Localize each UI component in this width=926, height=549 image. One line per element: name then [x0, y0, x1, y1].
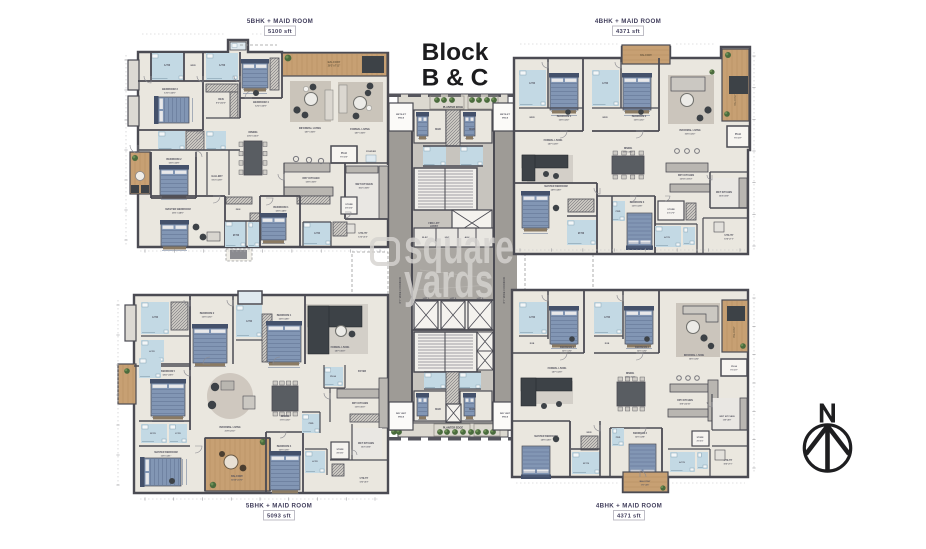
svg-text:PUJA: PUJA: [731, 365, 737, 368]
svg-text:SPACE: SPACE: [398, 116, 405, 119]
svg-text:7'5"x5'7": 7'5"x5'7": [734, 137, 742, 139]
svg-text:FORMAL LIVING: FORMAL LIVING: [350, 128, 370, 131]
svg-text:13'0"x10'0": 13'0"x10'0": [355, 406, 366, 408]
svg-text:BEDROOM 1: BEDROOM 1: [560, 347, 575, 349]
svg-text:14'7"x16'0": 14'7"x16'0": [335, 349, 346, 352]
svg-text:12'0"x12'2": 12'0"x12'2": [634, 119, 645, 121]
svg-text:15'5"x12'2": 15'5"x12'2": [685, 133, 696, 135]
svg-text:PUJA: PUJA: [341, 152, 347, 155]
svg-text:14'9"x14'0": 14'9"x14'0": [541, 438, 552, 441]
svg-text:STORE: STORE: [336, 449, 344, 451]
svg-text:BALCONY: BALCONY: [734, 94, 737, 106]
svg-text:MAID: MAID: [469, 408, 475, 411]
svg-text:4BHK + MAID ROOM: 4BHK + MAID ROOM: [595, 18, 661, 25]
svg-text:10'2"x10'6": 10'2"x10'6": [361, 446, 371, 448]
svg-text:12'0"x14'0": 12'0"x14'0": [275, 209, 286, 212]
svg-text:A.TOI: A.TOI: [219, 64, 226, 67]
svg-text:4BHK + MAID ROOM: 4BHK + MAID ROOM: [596, 503, 662, 510]
svg-text:10'9"x12'10": 10'9"x12'10": [679, 403, 690, 405]
svg-text:DRY KITCHEN: DRY KITCHEN: [303, 177, 320, 180]
svg-text:UTILITY: UTILITY: [360, 478, 369, 480]
svg-text:DRY KITCHEN: DRY KITCHEN: [352, 402, 368, 405]
svg-text:BEDROOM 3: BEDROOM 3: [162, 87, 178, 91]
svg-text:4'1"x7'6": 4'1"x7'6": [667, 211, 675, 214]
svg-text:M.TOI: M.TOI: [578, 233, 585, 235]
svg-text:FORMAL LIVING: FORMAL LIVING: [548, 367, 567, 370]
svg-text:17'5"x10'2": 17'5"x10'2": [623, 151, 634, 153]
svg-text:A.TOI: A.TOI: [529, 316, 535, 319]
svg-text:12'0"x12'8": 12'0"x12'8": [632, 205, 643, 207]
svg-text:14'7"x16'0": 14'7"x16'0": [354, 131, 365, 134]
svg-text:PUJA: PUJA: [330, 375, 336, 378]
svg-text:14'11"x10'0": 14'11"x10'0": [163, 373, 174, 376]
svg-text:13'2"x5'3": 13'2"x5'3": [359, 481, 368, 483]
svg-text:12'10"x11'10": 12'10"x11'10": [680, 178, 693, 180]
svg-text:13'9"x10'0": 13'9"x10'0": [305, 181, 316, 183]
svg-text:BEDROOM 1: BEDROOM 1: [557, 115, 572, 118]
svg-text:A.TOI: A.TOI: [679, 461, 685, 464]
svg-text:4371 sft: 4371 sft: [617, 514, 641, 520]
svg-text:POWDER: POWDER: [366, 151, 376, 153]
svg-text:13'9"x8'0": 13'9"x8'0": [723, 419, 732, 421]
svg-text:PUJA: PUJA: [735, 133, 741, 136]
svg-text:STORE: STORE: [345, 204, 353, 206]
svg-text:WDR: WDR: [587, 432, 592, 434]
svg-text:SPACE: SPACE: [502, 116, 509, 119]
svg-text:WDR: WDR: [529, 117, 535, 119]
svg-text:WET KITCHEN: WET KITCHEN: [716, 192, 732, 194]
svg-text:BALCONY: BALCONY: [640, 54, 652, 57]
svg-text:A.TOI: A.TOI: [164, 64, 171, 67]
svg-text:14'9"x14'0": 14'9"x14'0": [551, 188, 562, 191]
svg-text:MAID: MAID: [435, 408, 441, 411]
svg-text:GALLERY: GALLERY: [211, 175, 223, 178]
svg-text:10'6"x7'1": 10'6"x7'1": [724, 238, 734, 240]
svg-text:A.TOI: A.TOI: [152, 316, 158, 319]
svg-text:BALCONY: BALCONY: [733, 326, 736, 337]
svg-text:7'0"x5'0": 7'0"x5'0": [340, 156, 348, 158]
svg-text:12'0"x12'8": 12'0"x12'8": [635, 436, 645, 438]
svg-text:BEDROOM 5: BEDROOM 5: [161, 371, 176, 373]
svg-text:DRY KITCHEN: DRY KITCHEN: [678, 174, 694, 177]
svg-text:13'0"x12'9": 13'0"x12'9": [168, 162, 179, 164]
svg-text:12'0"x12'2": 12'0"x12'2": [202, 316, 213, 318]
svg-text:DRY KITCHEN: DRY KITCHEN: [677, 400, 693, 402]
svg-text:WDR: WDR: [190, 65, 196, 67]
svg-text:20'1"x14'0": 20'1"x14'0": [172, 211, 184, 214]
svg-text:BALCONY: BALCONY: [231, 475, 243, 478]
svg-text:FORMAL LIVING: FORMAL LIVING: [331, 346, 350, 349]
svg-text:DRY UNIT: DRY UNIT: [396, 413, 407, 415]
svg-text:SPACE: SPACE: [502, 415, 509, 418]
svg-text:A.TOI: A.TOI: [149, 350, 155, 353]
svg-text:ROB: ROB: [530, 343, 535, 345]
svg-text:4371 sft: 4371 sft: [616, 29, 640, 35]
svg-text:MAID: MAID: [469, 128, 475, 131]
svg-text:WET/LIFT: WET/LIFT: [396, 114, 407, 116]
svg-text:STORE: STORE: [697, 437, 705, 439]
svg-text:WET KITCHEN: WET KITCHEN: [719, 416, 735, 418]
svg-text:12'0"x12'2": 12'0"x12'2": [562, 350, 572, 352]
svg-text:PWD: PWD: [309, 423, 314, 425]
svg-text:INFORMAL LIVING: INFORMAL LIVING: [299, 127, 321, 130]
svg-text:BEDROOM 4: BEDROOM 4: [253, 100, 269, 104]
svg-text:29'2"x7'11": 29'2"x7'11": [328, 64, 341, 67]
svg-text:10'6"x7'1": 10'6"x7'1": [723, 463, 732, 465]
svg-text:INFORMAL LIVING: INFORMAL LIVING: [679, 129, 700, 132]
svg-text:BEDROOM 1: BEDROOM 1: [277, 314, 292, 317]
svg-text:A.TOI: A.TOI: [314, 232, 320, 235]
svg-text:BEDROOM 1: BEDROOM 1: [273, 206, 289, 209]
svg-text:7'0"x5'7": 7'0"x5'7": [730, 369, 738, 371]
svg-text:INFORMAL LIVING: INFORMAL LIVING: [219, 426, 240, 429]
svg-text:4'9"x6'6": 4'9"x6'6": [345, 206, 353, 209]
svg-text:K.TOI: K.TOI: [175, 433, 181, 435]
svg-text:UTILITY: UTILITY: [358, 232, 367, 235]
svg-text:17'0"x13'2": 17'0"x13'2": [280, 419, 291, 421]
svg-text:MASTER BEDROOM: MASTER BEDROOM: [544, 185, 567, 188]
svg-text:DINING: DINING: [626, 372, 635, 375]
svg-text:5BHK + MAID ROOM: 5BHK + MAID ROOM: [246, 503, 312, 510]
svg-text:STORE: STORE: [667, 209, 675, 211]
svg-text:A.TOI: A.TOI: [604, 316, 610, 319]
svg-text:23'3"x13'2": 23'3"x13'2": [247, 135, 259, 137]
svg-text:12'0"x14'5": 12'0"x14'5": [279, 317, 290, 320]
svg-text:BALCONY: BALCONY: [328, 60, 341, 64]
svg-text:14'7"x12'9": 14'7"x12'9": [548, 142, 559, 145]
svg-text:6'7" WIDE CORRIDOR: 6'7" WIDE CORRIDOR: [502, 277, 506, 304]
svg-text:A.TOI: A.TOI: [246, 320, 252, 323]
svg-text:DEN: DEN: [218, 98, 223, 101]
svg-text:17'1"x6'6": 17'1"x6'6": [641, 484, 650, 486]
svg-text:BALCONY: BALCONY: [640, 480, 651, 483]
svg-text:DINING: DINING: [248, 130, 257, 134]
svg-text:13'5"x14'1": 13'5"x14'1": [161, 454, 172, 457]
svg-text:A.TOI: A.TOI: [529, 82, 535, 85]
svg-text:MASTER BEDROOM: MASTER BEDROOM: [154, 451, 177, 454]
svg-text:4'9"x6'6": 4'9"x6'6": [336, 451, 343, 454]
svg-text:14'7"x16'0": 14'7"x16'0": [304, 130, 315, 133]
svg-text:A.TOI: A.TOI: [664, 236, 670, 239]
svg-text:WET KITCHEN: WET KITCHEN: [358, 443, 374, 445]
svg-text:A.TOI: A.TOI: [312, 460, 318, 463]
svg-text:9'0"x12'0": 9'0"x12'0": [216, 102, 226, 104]
svg-text:BEDROOM 2: BEDROOM 2: [632, 115, 647, 118]
svg-text:12'2"x12'9": 12'2"x12'9": [255, 105, 267, 107]
svg-text:PWD: PWD: [616, 211, 621, 213]
svg-text:PLANTER EDGE: PLANTER EDGE: [443, 426, 464, 430]
svg-text:WET/LIFT: WET/LIFT: [500, 114, 511, 116]
svg-text:10'2"x10'6": 10'2"x10'6": [358, 187, 369, 189]
svg-text:21'8"x21'2": 21'8"x21'2": [225, 430, 236, 432]
svg-text:DINING: DINING: [281, 415, 290, 418]
svg-text:5BHK + MAID ROOM: 5BHK + MAID ROOM: [247, 18, 313, 25]
svg-text:13'0"x12'0": 13'0"x12'0": [164, 92, 176, 94]
svg-text:12'0"x12'2": 12'0"x12'2": [637, 350, 647, 352]
svg-text:14'7"x12'9": 14'7"x12'9": [552, 370, 563, 373]
svg-text:PWD: PWD: [616, 437, 621, 439]
svg-text:5'10"x12'9": 5'10"x12'9": [212, 179, 223, 181]
svg-text:DRY UNIT: DRY UNIT: [500, 413, 511, 415]
svg-text:10'4"x10'9": 10'4"x10'9": [719, 194, 729, 197]
svg-text:MASTER BEDROOM: MASTER BEDROOM: [165, 207, 190, 211]
svg-text:FORMAL LIVING: FORMAL LIVING: [544, 139, 563, 142]
svg-text:UTILITY: UTILITY: [724, 234, 733, 237]
svg-text:BEDROOM 2: BEDROOM 2: [635, 347, 650, 349]
svg-text:WET KITCHEN: WET KITCHEN: [355, 183, 373, 186]
svg-text:BEDROOM 4: BEDROOM 4: [277, 445, 292, 448]
svg-text:17'0"x10'0": 17'0"x10'0": [625, 376, 636, 378]
svg-text:B & C: B & C: [422, 65, 489, 92]
svg-text:14'10"x10'0": 14'10"x10'0": [231, 478, 243, 481]
svg-text:M.TOI: M.TOI: [233, 235, 240, 237]
svg-text:SPACE: SPACE: [398, 415, 405, 418]
svg-text:5093 sft: 5093 sft: [267, 514, 291, 520]
svg-text:BEDROOM 2: BEDROOM 2: [200, 312, 215, 315]
svg-text:M.TOI: M.TOI: [583, 463, 589, 465]
svg-text:BEDROOM 2: BEDROOM 2: [166, 158, 182, 161]
svg-text:13'2"x5'3": 13'2"x5'3": [358, 236, 368, 238]
svg-text:15'5"x12'2": 15'5"x12'2": [689, 358, 699, 360]
svg-text:Block: Block: [422, 39, 489, 66]
svg-text:FOYER: FOYER: [358, 370, 367, 373]
svg-text:12'0"x12'2": 12'0"x12'2": [559, 119, 570, 121]
svg-text:ROB: ROB: [605, 343, 610, 345]
svg-text:MAID: MAID: [435, 128, 441, 131]
svg-text:M.TOI: M.TOI: [150, 433, 156, 435]
svg-text:5100 sft: 5100 sft: [268, 29, 292, 35]
svg-text:WDR: WDR: [602, 117, 608, 119]
svg-text:PLANTER EDGE: PLANTER EDGE: [443, 105, 464, 109]
svg-text:DINING: DINING: [624, 147, 633, 150]
svg-text:yards: yards: [404, 254, 493, 307]
svg-text:A.TOI: A.TOI: [602, 82, 608, 85]
svg-text:INFORMAL LIVING: INFORMAL LIVING: [684, 354, 705, 357]
svg-text:6'7" WIDE CORRIDOR: 6'7" WIDE CORRIDOR: [398, 277, 402, 304]
svg-text:DEN: DEN: [236, 209, 241, 211]
